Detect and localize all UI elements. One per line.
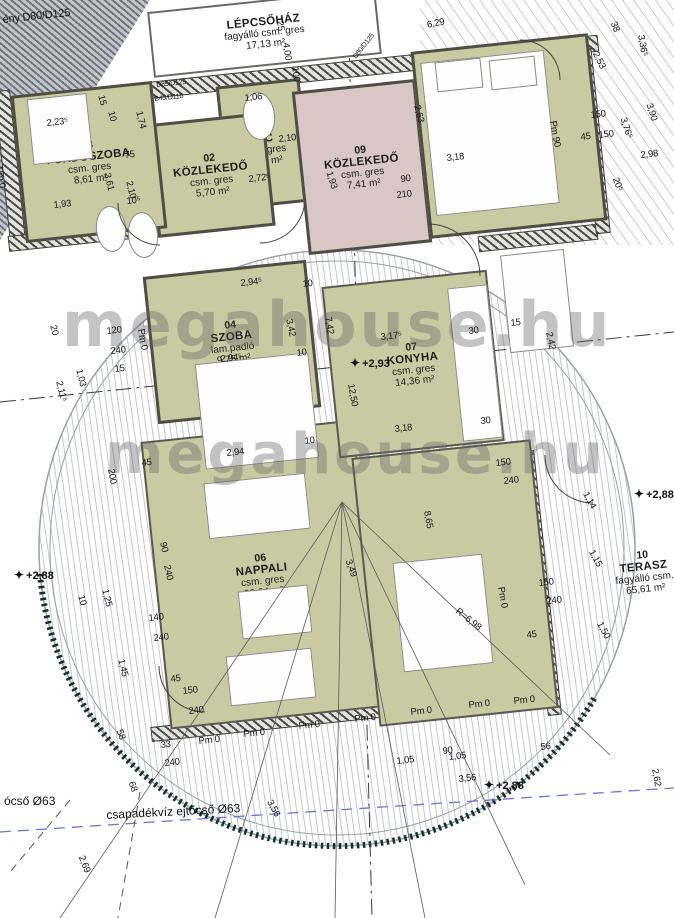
dimension-label: 3,56	[458, 772, 477, 785]
watermark-lower: megahouse.hu	[105, 422, 606, 487]
dimension-label: 45	[170, 673, 181, 685]
dimension-label: 240	[164, 756, 180, 769]
dimension-label: 3,17⁵	[380, 330, 402, 343]
room-terasz-10: 10TERASZfagyálló csm.65,61 m²	[592, 527, 674, 617]
level-star-icon: ✦	[14, 568, 24, 582]
furniture-shower	[27, 93, 94, 165]
level-star-icon: ✦	[634, 487, 644, 501]
furniture-coffee-table	[238, 584, 313, 639]
furniture-dining-table	[392, 554, 493, 673]
dimension-label: 240	[188, 704, 204, 717]
floor-plan-canvas: LÉPCSŐHÁZfagyálló csm. gres17,13 m²01WCc…	[0, 0, 674, 918]
level-marker: ✦+2,93	[350, 356, 390, 370]
dimension-label: 100	[289, 66, 302, 83]
room-kozlekedo-09: 09KÖZLEKEDŐcsm. gres7,41 m²	[292, 79, 432, 255]
dimension-label: 45	[580, 131, 591, 143]
dimension-label: 240	[503, 474, 519, 487]
dimension-label: 2,94	[226, 446, 245, 459]
dimension-label: 10	[304, 435, 315, 447]
dimension-label: Pm 0	[243, 727, 265, 740]
dimension-label: 2,23⁵	[46, 116, 68, 129]
dimension-label: 2,94⁵	[220, 352, 242, 365]
dimension-label: 240	[153, 631, 169, 644]
dimension-label: 30	[468, 325, 479, 337]
dimension-label: 240	[546, 594, 562, 607]
dimension-label: 90	[442, 745, 453, 757]
dimension-label: 56	[540, 741, 551, 753]
furniture-pillow-2	[489, 56, 538, 91]
level-marker: ✦+2,88	[14, 568, 54, 582]
dimension-label: 10	[302, 278, 313, 290]
watermark-upper: megahouse.hu	[62, 288, 613, 361]
dimension-label: 150	[495, 456, 511, 469]
dimension-label: 75	[124, 149, 135, 161]
dimension-label: 120	[106, 324, 122, 337]
dimension-label: 140	[148, 611, 164, 624]
level-value: +2,93	[362, 358, 390, 370]
dimension-label: 150	[182, 684, 198, 697]
dimension-label: 150	[590, 108, 606, 121]
furniture-pillow-1	[435, 58, 484, 93]
dashed-diagonal-1	[10, 800, 70, 872]
dimension-label: 15	[114, 363, 125, 375]
dimension-label: Pm 0	[513, 694, 535, 707]
dimension-label: 10	[296, 347, 307, 359]
dimension-label: 2,94⁵	[240, 276, 262, 289]
dimension-label: 4,00	[280, 42, 293, 61]
level-star-icon: ✦	[484, 778, 494, 792]
dimension-label: 3,18	[394, 422, 413, 435]
pipe-note: ócső Ø63	[4, 794, 55, 808]
dimension-label: 3,18	[446, 151, 465, 164]
level-value: +2,88	[496, 780, 524, 792]
dimension-label: 10⁵	[126, 195, 141, 207]
dimension-label: 15	[510, 317, 521, 329]
dimension-label: 45	[526, 629, 537, 641]
dimension-label: 1,06	[244, 91, 263, 104]
dimension-label: 210	[396, 188, 412, 201]
dimension-label: 2,98	[640, 148, 659, 161]
dimension-label: 2,72⁵	[248, 172, 270, 185]
level-star-icon: ✦	[350, 356, 360, 370]
dimension-label: Pm 0	[198, 734, 220, 747]
dimension-label: Pm 0	[354, 712, 376, 725]
dimension-label: 150	[598, 128, 614, 141]
room-kozlekedo-02-area: 5,70 m²	[195, 185, 230, 199]
dimension-label: 45	[141, 457, 152, 469]
room-kozlekedo-09-area: 7,41 m²	[346, 177, 381, 191]
level-value: +2,88	[646, 489, 674, 501]
dimension-label: Pm 0	[410, 705, 432, 718]
level-marker: ✦+2,88	[634, 487, 674, 501]
level-value: +2,88	[26, 570, 54, 582]
dimension-label: 30	[480, 415, 491, 427]
dimension-label: Pm 0	[298, 719, 320, 732]
dimension-label: 2,10	[278, 132, 297, 145]
level-marker: ✦+2,88	[484, 778, 524, 792]
dimension-label: 240	[110, 344, 126, 357]
dimension-label: 1,05	[396, 754, 415, 767]
dimension-label: Pm 0	[468, 698, 490, 711]
furniture-sofa-2	[226, 648, 317, 707]
dimension-label: 150	[538, 576, 554, 589]
dimension-label: 33	[160, 739, 171, 751]
dimension-label: 90	[400, 173, 411, 185]
dimension-label: 1,93	[53, 198, 72, 211]
dimension-label: 25	[274, 20, 286, 32]
